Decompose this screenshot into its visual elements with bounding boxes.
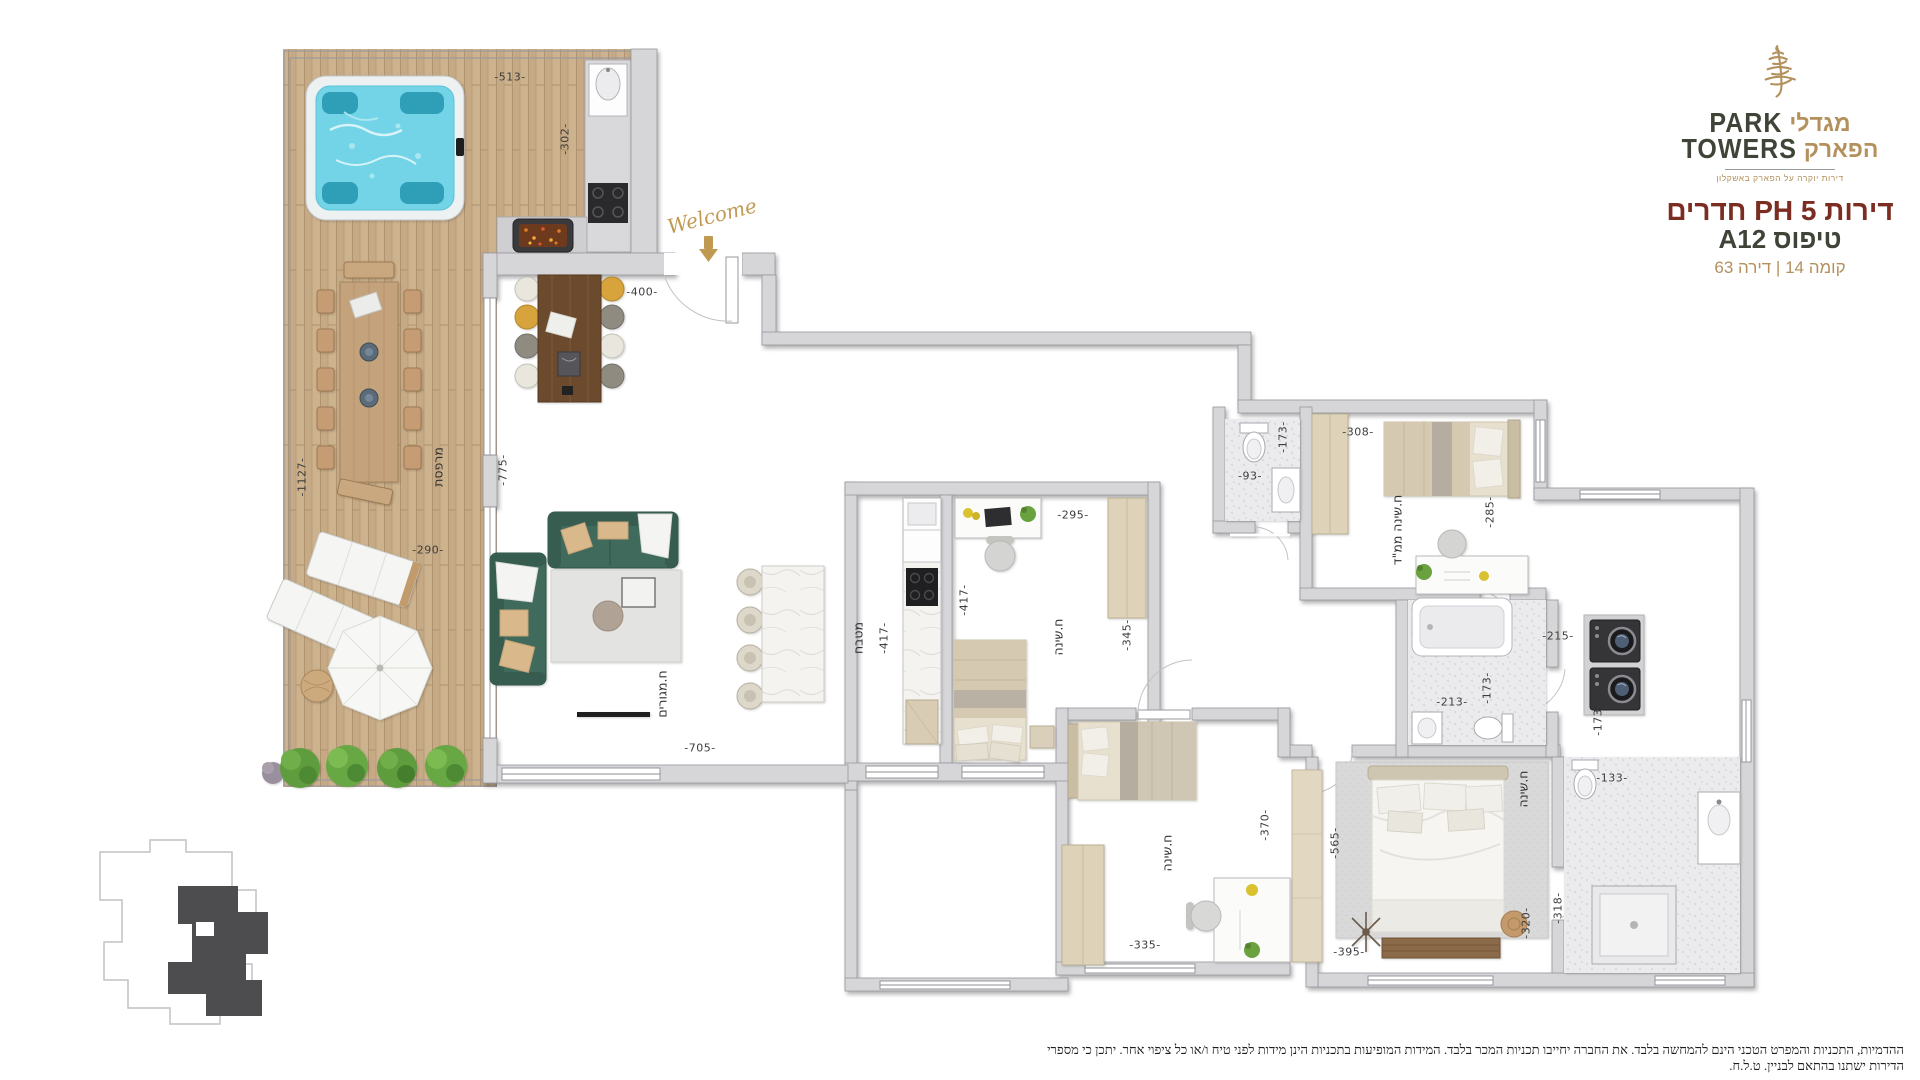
dimension-label: -173-: [1592, 704, 1605, 735]
dimension-label: -400-: [626, 286, 657, 299]
brand-line-1: PARK מגדלי: [1640, 110, 1920, 136]
dimension-label: -290-: [412, 544, 443, 557]
logo-divider: [1725, 169, 1835, 170]
dimension-label: -565-: [1329, 827, 1342, 858]
dimension-label: -318-: [1552, 892, 1565, 923]
page-title: דירות 5 PH חדרים: [1640, 196, 1920, 225]
dimension-label: -308-: [1342, 426, 1373, 439]
brand-line-2: TOWERS הפארק: [1640, 136, 1920, 162]
dimension-label: -335-: [1129, 939, 1160, 952]
room-label: מרפסת: [431, 447, 446, 487]
room-label: מטבח: [851, 622, 866, 654]
brand-migdalei: מגדלי: [1789, 112, 1850, 136]
brand-hapark: הפארק: [1804, 138, 1879, 162]
dimension-label: -705-: [684, 742, 715, 755]
page: -513--302--400--1127--775--290--705--417…: [0, 0, 1920, 1080]
dimension-label: -513-: [494, 71, 525, 84]
dimension-label: -417-: [878, 622, 891, 653]
plan-labels: -513--302--400--1127--775--290--705--417…: [0, 0, 1920, 1080]
dimension-label: -775-: [497, 454, 510, 485]
pine-tree-icon: [1753, 42, 1807, 104]
dimension-label: -215-: [1542, 630, 1573, 643]
room-label: ח.מגורים: [655, 670, 670, 717]
dimension-label: -133-: [1596, 772, 1627, 785]
dimension-label: -1127-: [296, 458, 309, 497]
dimension-label: -345-: [1121, 619, 1134, 650]
room-label: ח.שינה: [1051, 619, 1066, 656]
brand-towers: TOWERS: [1682, 134, 1797, 163]
disclaimer-text: ההדמיות, התכניות והמפרט הטכני הינם להמחש…: [1044, 1042, 1904, 1074]
dimension-label: -302-: [559, 123, 572, 154]
room-label: ח.שינה: [1516, 771, 1531, 808]
room-label: ח.שינה: [1160, 835, 1175, 872]
dimension-label: -417-: [958, 584, 971, 615]
dimension-label: -395-: [1333, 946, 1364, 959]
logo-block: PARK מגדלי TOWERS הפארק דירות יוקרה על ה…: [1640, 42, 1920, 278]
dimension-label: -295-: [1057, 509, 1088, 522]
dimension-label: -213-: [1436, 696, 1467, 709]
apartment-type: טיפוס A12: [1640, 225, 1920, 254]
dimension-label: -173-: [1481, 672, 1494, 703]
room-label: ח.שינה ממ"ד: [1390, 495, 1405, 566]
dimension-label: -173-: [1277, 421, 1290, 452]
brand-tagline: דירות יוקרה על הפארק באשקלון: [1640, 173, 1920, 183]
floor-apartment: קומה 14 | דירה 63: [1640, 258, 1920, 278]
dimension-label: -285-: [1484, 496, 1497, 527]
dimension-label: -93-: [1238, 470, 1262, 483]
dimension-label: -320-: [1520, 907, 1533, 938]
dimension-label: -370-: [1259, 809, 1272, 840]
